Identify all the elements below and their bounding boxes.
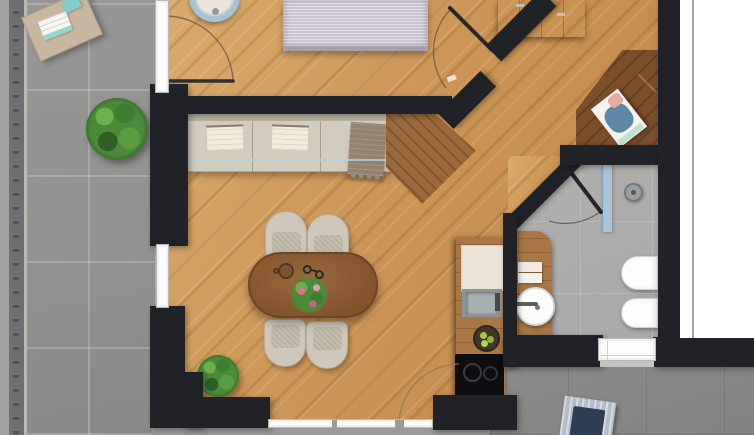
floor-plan-render xyxy=(0,0,754,435)
wall-bathroom-bottom xyxy=(503,335,603,367)
wall-right xyxy=(658,0,682,338)
wall-right-band xyxy=(653,337,754,367)
bedroom-door-handle xyxy=(447,74,457,82)
bedroom-door-arc xyxy=(433,10,450,88)
glazing-mullion xyxy=(395,420,404,429)
bathroom-window xyxy=(598,338,656,361)
glazing-mullion xyxy=(332,420,337,429)
window-frame-line xyxy=(601,355,655,356)
bathroom-door-arc xyxy=(549,212,600,223)
bedroom-door-leaf xyxy=(450,8,492,50)
wall-bottom-left xyxy=(185,397,270,428)
bathroom-window-sill xyxy=(600,361,654,367)
door-swings-layer xyxy=(0,0,754,435)
terrace-glazing-strip xyxy=(268,419,433,428)
plot-boundary-line xyxy=(692,0,694,338)
wall-left-living xyxy=(150,84,188,246)
balcony-window-bedroom xyxy=(155,0,169,93)
window-frame-line xyxy=(607,341,608,360)
balcony-window-living xyxy=(156,244,169,308)
balcony-door-arc xyxy=(166,16,233,80)
wall-kitchen-bottom xyxy=(433,395,517,430)
wall-left-lower xyxy=(150,306,185,372)
wall-bathroom-top xyxy=(560,145,665,165)
wall-living-top xyxy=(185,96,452,114)
